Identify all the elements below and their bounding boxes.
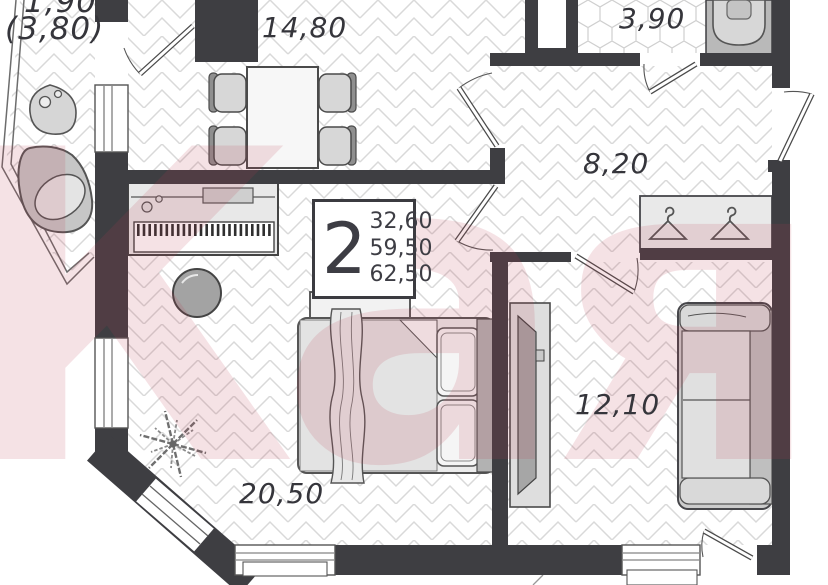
- dining-chair: [319, 73, 356, 112]
- bed-headboard: [477, 319, 494, 472]
- bathtub: [706, 0, 772, 54]
- window-bedroom-bottom: [622, 545, 700, 585]
- tv-cabinet: [510, 303, 550, 507]
- wall-top-pier: [195, 0, 258, 62]
- blanket: [300, 320, 437, 471]
- dining-table: [247, 67, 318, 168]
- floor-plan: Каян 1,90 (3,80) 14,80 3,90 8,20 12,10 2…: [0, 0, 828, 585]
- floor-area-value: 59,50: [370, 236, 433, 263]
- wall-kitchen-living-divider: [95, 170, 505, 184]
- room-label-kitchen-living: 14,80: [262, 11, 347, 44]
- pouf: [173, 269, 221, 317]
- room-label-bedroom: 12,10: [575, 388, 660, 421]
- total-area-value: 62,50: [370, 262, 433, 289]
- wardrobe: [640, 196, 772, 252]
- piano: [128, 182, 278, 255]
- wall-right: [772, 0, 790, 88]
- window-left-upper: [95, 85, 128, 152]
- pillow: [437, 328, 479, 396]
- room-label-living-room: 20,50: [239, 477, 324, 510]
- wall-living-bedroom-divider: [492, 262, 508, 545]
- window-left-lower: [95, 338, 128, 428]
- apartment-summary-box: 2 32,60 59,50 62,50: [312, 199, 416, 299]
- room-label-bathroom: 3,90: [619, 2, 685, 35]
- bed-throw: [330, 309, 365, 483]
- pillow: [437, 400, 479, 466]
- bed: [298, 309, 494, 483]
- room-label-balcony-area-alt: (3,80): [5, 11, 104, 47]
- door-entrance: [780, 91, 812, 161]
- dining-chair: [209, 126, 246, 165]
- living-area-value: 32,60: [370, 209, 433, 236]
- dining-chair: [209, 73, 246, 112]
- window-living-bottom: [235, 545, 335, 576]
- dining-chair: [319, 126, 356, 165]
- room-label-hallway: 8,20: [583, 147, 649, 180]
- vent-shaft-inset: [538, 0, 566, 48]
- rooms-count: 2: [322, 220, 367, 280]
- sofa: [678, 303, 772, 509]
